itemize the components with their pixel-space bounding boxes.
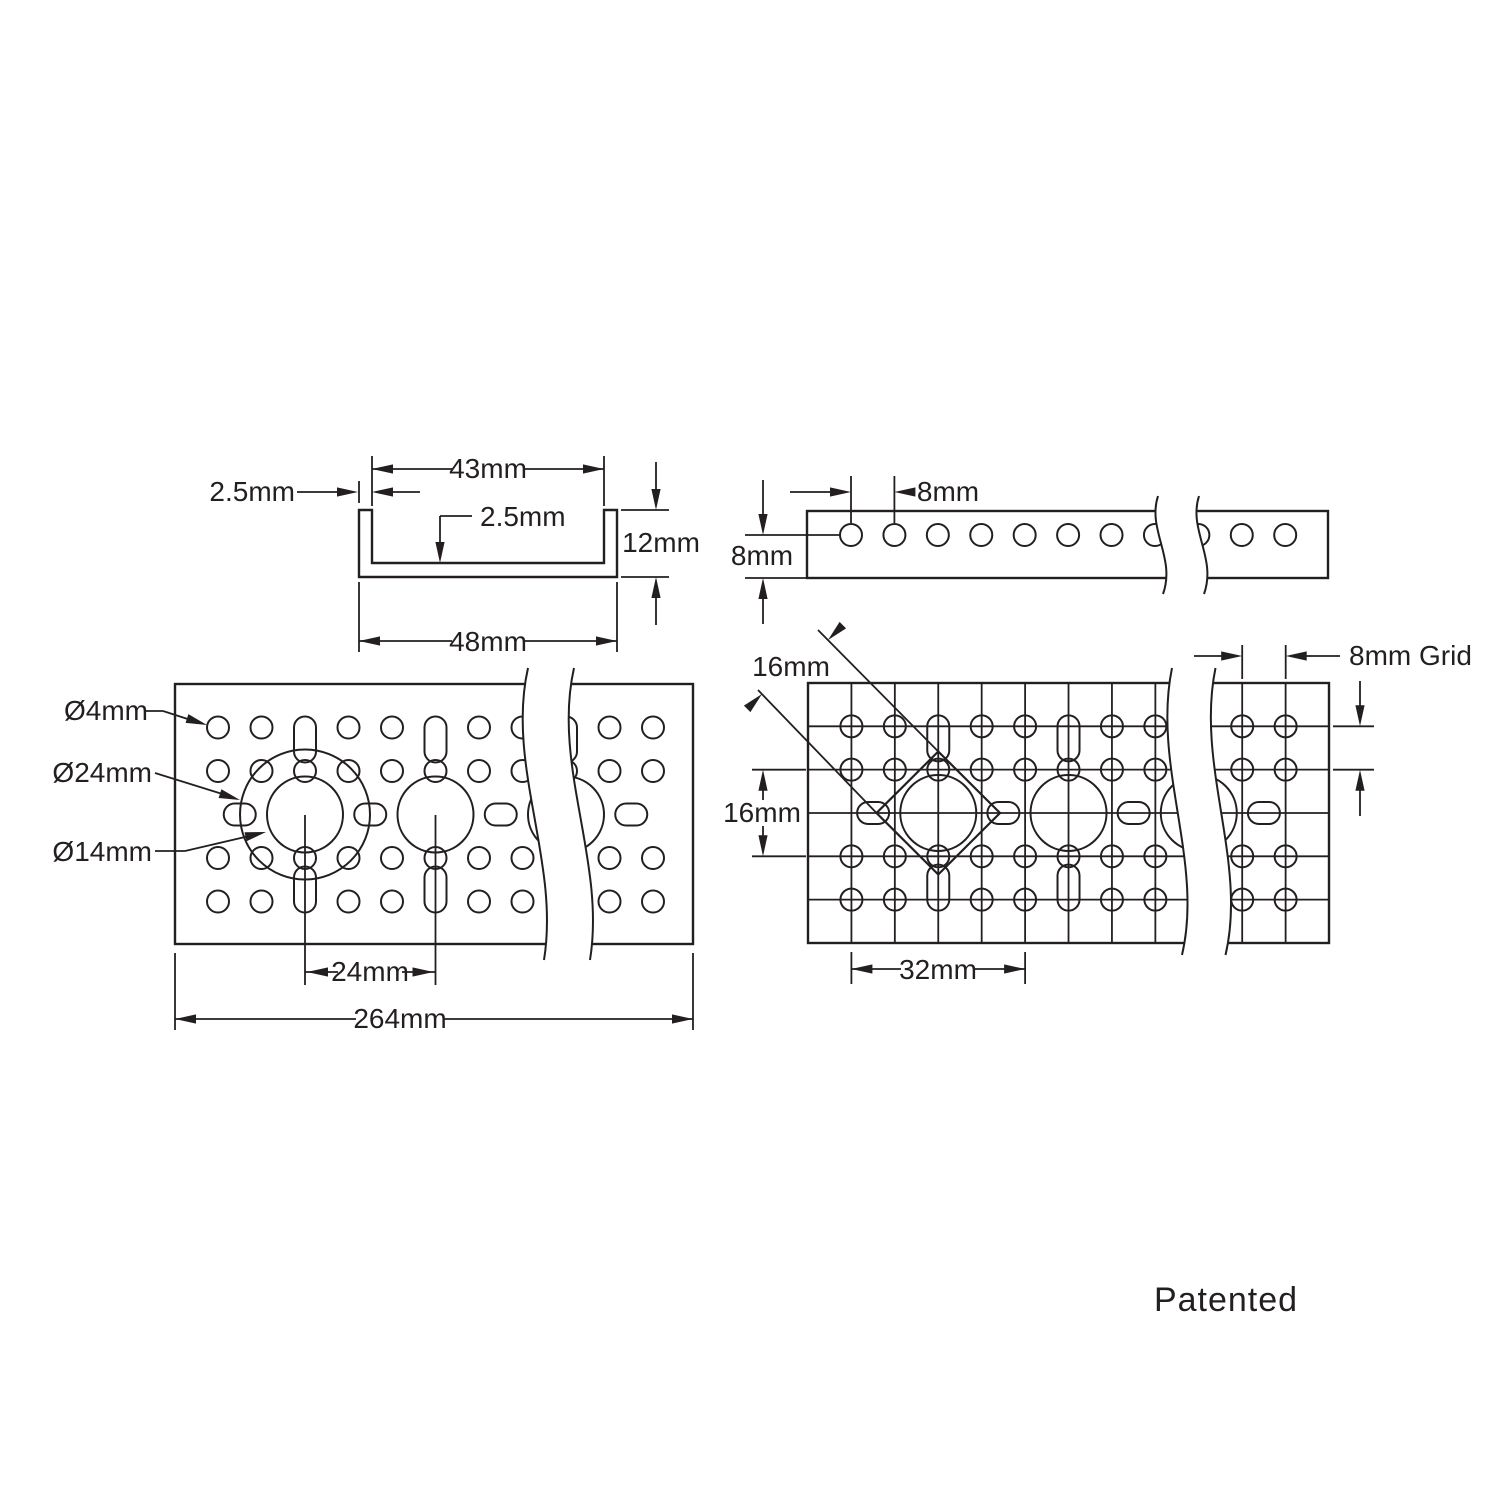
leader-label-center-hole: Ø14mm <box>52 836 152 867</box>
arrowhead <box>372 487 393 496</box>
arrowhead <box>651 489 660 510</box>
small-hole <box>599 760 621 782</box>
arrowhead <box>758 770 767 791</box>
small-hole <box>512 847 534 869</box>
side-plate-outline <box>807 511 1328 578</box>
dim-label-row-span: 16mm <box>723 797 801 828</box>
small-hole <box>642 760 664 782</box>
small-hole <box>207 760 229 782</box>
dim-label-grid: 8mm Grid <box>1349 640 1472 671</box>
dim-label-overall-length: 264mm <box>353 1003 446 1034</box>
face-view <box>146 668 693 1030</box>
arrowhead <box>583 464 604 473</box>
dim-label-floor-thickness: 2.5mm <box>480 501 566 532</box>
small-hole <box>338 760 360 782</box>
small-hole <box>468 717 490 739</box>
arrowhead <box>245 832 267 841</box>
dim-label-hole-pitch: 8mm <box>917 476 979 507</box>
side-hole <box>1274 524 1296 546</box>
patented-note: Patented <box>1154 1281 1298 1319</box>
arrowhead <box>1355 770 1364 791</box>
arrowhead <box>894 487 915 496</box>
technical-drawing-page: 43mm 2.5mm 2.5mm 12mm 48mm 8mm 8mm Ø4mm … <box>0 0 1500 1500</box>
dim-label-edge-distance: 8mm <box>731 540 793 571</box>
small-hole <box>642 891 664 913</box>
dim-label-diamond-size: 16mm <box>752 651 830 682</box>
extension-line <box>818 630 938 752</box>
arrowhead <box>219 789 240 800</box>
arrowhead <box>851 964 872 973</box>
arrowhead <box>651 577 660 598</box>
small-hole <box>381 847 403 869</box>
small-hole <box>251 760 273 782</box>
extension-line <box>758 690 877 813</box>
small-hole <box>381 717 403 739</box>
small-hole <box>468 891 490 913</box>
dim-label-height: 12mm <box>622 527 700 558</box>
side-hole <box>1101 524 1123 546</box>
small-hole <box>207 717 229 739</box>
small-hole <box>642 717 664 739</box>
small-hole <box>251 847 273 869</box>
arrowhead <box>830 487 851 496</box>
side-view <box>745 476 1328 624</box>
arrowhead <box>828 622 846 640</box>
small-hole <box>338 717 360 739</box>
small-hole <box>599 847 621 869</box>
arrowhead <box>1355 705 1364 726</box>
small-hole <box>468 847 490 869</box>
drawing-canvas: 43mm 2.5mm 2.5mm 12mm 48mm 8mm 8mm Ø4mm … <box>0 0 1500 1500</box>
small-hole <box>381 891 403 913</box>
small-hole <box>512 891 534 913</box>
arrowhead <box>307 967 328 976</box>
small-hole <box>207 847 229 869</box>
side-hole <box>840 524 862 546</box>
small-hole <box>468 760 490 782</box>
small-hole <box>251 891 273 913</box>
arrowhead <box>1286 651 1307 660</box>
small-hole <box>207 891 229 913</box>
arrowhead <box>372 464 393 473</box>
side-hole <box>883 524 905 546</box>
vertical-slot <box>294 717 316 763</box>
small-hole <box>251 717 273 739</box>
center-oval-slot <box>485 804 517 826</box>
arrowhead <box>1004 964 1025 973</box>
small-hole <box>642 847 664 869</box>
arrowhead <box>596 636 617 645</box>
dim-label-inner-width: 43mm <box>449 453 527 484</box>
grid-view <box>744 622 1374 984</box>
dim-label-wall-thickness: 2.5mm <box>209 476 295 507</box>
side-hole <box>1057 524 1079 546</box>
side-hole <box>970 524 992 546</box>
dim-label-outer-width: 48mm <box>449 626 527 657</box>
arrowhead <box>337 487 358 496</box>
small-hole <box>381 760 403 782</box>
arrowhead <box>672 1014 693 1023</box>
arrowhead <box>758 578 767 599</box>
arrowhead <box>435 542 444 563</box>
dim-label-large-hole-pitch: 24mm <box>331 956 409 987</box>
small-hole <box>338 847 360 869</box>
small-hole <box>338 891 360 913</box>
side-hole <box>1231 524 1253 546</box>
side-hole <box>927 524 949 546</box>
leader-label-small-hole: Ø4mm <box>64 695 148 726</box>
arrowhead <box>359 636 380 645</box>
arrowhead <box>175 1014 196 1023</box>
arrowhead <box>186 714 207 725</box>
section-view <box>297 456 669 652</box>
vertical-slot <box>425 717 447 763</box>
leader-label-large-bore: Ø24mm <box>52 757 152 788</box>
arrowhead <box>1221 651 1242 660</box>
side-hole <box>1014 524 1036 546</box>
center-oval-slot <box>615 804 647 826</box>
small-hole <box>599 717 621 739</box>
arrowhead <box>758 514 767 535</box>
arrowhead <box>758 835 767 856</box>
arrowhead <box>413 967 434 976</box>
small-hole <box>599 891 621 913</box>
dim-label-pattern-pitch: 32mm <box>899 954 977 985</box>
arrowhead <box>744 694 762 712</box>
